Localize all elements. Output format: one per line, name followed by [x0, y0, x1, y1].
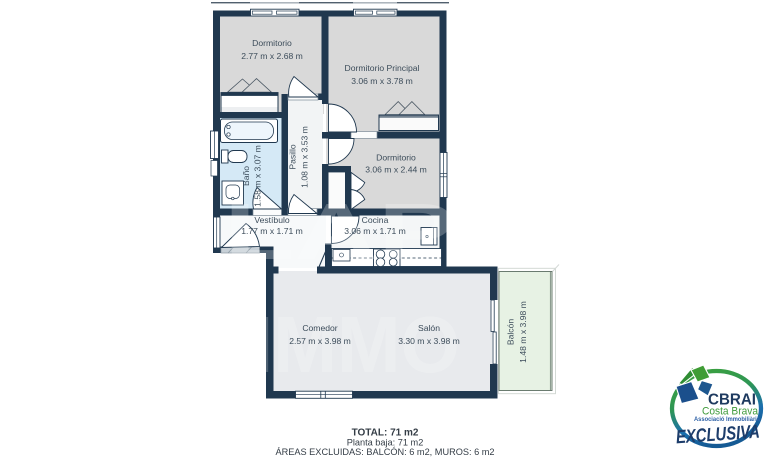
- svg-text:Salón: Salón: [418, 323, 440, 333]
- svg-text:1.58 m x 3.07 m: 1.58 m x 3.07 m: [253, 145, 263, 207]
- svg-text:Dormitorio: Dormitorio: [252, 38, 292, 48]
- svg-text:3.06 m x 2.44 m: 3.06 m x 2.44 m: [365, 165, 427, 175]
- svg-text:Cocina: Cocina: [362, 215, 389, 225]
- svg-text:Vestíbulo: Vestíbulo: [254, 215, 290, 225]
- svg-text:3.30 m x 3.98 m: 3.30 m x 3.98 m: [398, 336, 460, 346]
- svg-text:3.06 m x 3.78 m: 3.06 m x 3.78 m: [351, 76, 413, 86]
- svg-text:Dormitorio: Dormitorio: [376, 153, 416, 163]
- svg-text:1.48 m x 3.98 m: 1.48 m x 3.98 m: [518, 301, 528, 363]
- svg-text:2.77 m x 2.68 m: 2.77 m x 2.68 m: [241, 51, 303, 61]
- svg-text:Comedor: Comedor: [302, 323, 337, 333]
- svg-text:1.77 m x 1.71 m: 1.77 m x 1.71 m: [241, 226, 303, 236]
- svg-text:Planta baja: 71 m2: Planta baja: 71 m2: [347, 437, 424, 447]
- svg-text:Dormitorio Principal: Dormitorio Principal: [345, 63, 420, 73]
- svg-text:Pasillo: Pasillo: [288, 144, 298, 170]
- svg-text:Balcón: Balcón: [506, 319, 516, 345]
- svg-text:3.06 m x 1.71 m: 3.06 m x 1.71 m: [344, 226, 406, 236]
- svg-text:ÁREAS EXCLUIDAS: BALCÓN: 6 m2,: ÁREAS EXCLUIDAS: BALCÓN: 6 m2, MUROS: 6 …: [275, 447, 494, 457]
- svg-text:1.08 m x 3.53 m: 1.08 m x 3.53 m: [300, 126, 310, 188]
- svg-text:Baño: Baño: [241, 166, 251, 186]
- svg-text:2.57 m x 3.98 m: 2.57 m x 3.98 m: [289, 336, 351, 346]
